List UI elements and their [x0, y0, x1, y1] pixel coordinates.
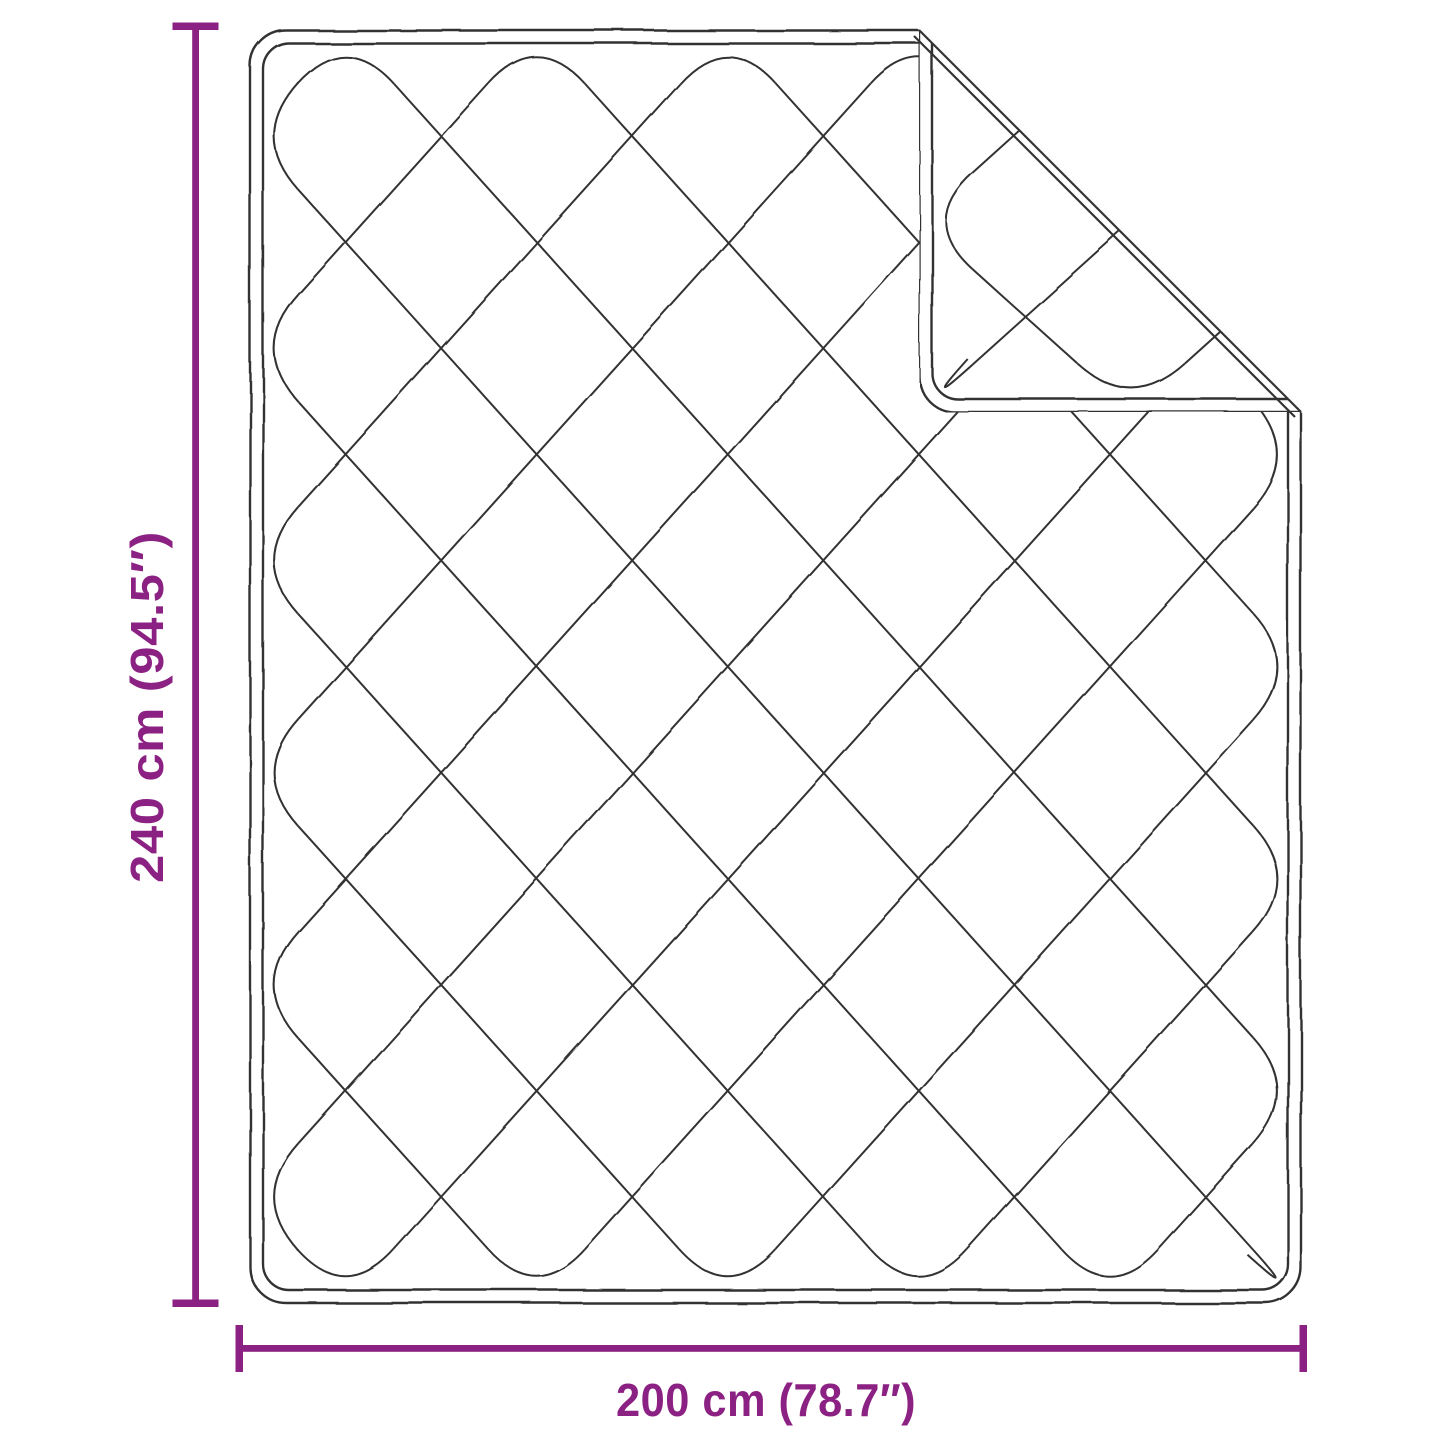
width-dimension-left-cap [236, 1325, 244, 1372]
blanket-drawing [250, 0, 1445, 1303]
product-dimension-diagram: 240 cm (94.5″) 200 cm (78.7″) [0, 0, 1445, 1445]
height-dimension-bottom-cap [173, 1300, 219, 1308]
folded-corner-flap [919, 0, 1445, 412]
width-dimension: 200 cm (78.7″) [236, 1325, 1308, 1426]
width-dimension-right-cap [1300, 1325, 1308, 1372]
height-dimension: 240 cm (94.5″) [121, 23, 219, 1308]
blanket-front [250, 30, 1301, 1303]
height-dimension-line [192, 26, 199, 1304]
blanket-dimension-diagram: 240 cm (94.5″) 200 cm (78.7″) [0, 0, 1445, 1445]
width-dimension-label: 200 cm (78.7″) [616, 1374, 916, 1426]
width-dimension-line [239, 1345, 1303, 1352]
height-dimension-top-cap [173, 23, 219, 31]
height-dimension-label: 240 cm (94.5″) [121, 531, 173, 883]
